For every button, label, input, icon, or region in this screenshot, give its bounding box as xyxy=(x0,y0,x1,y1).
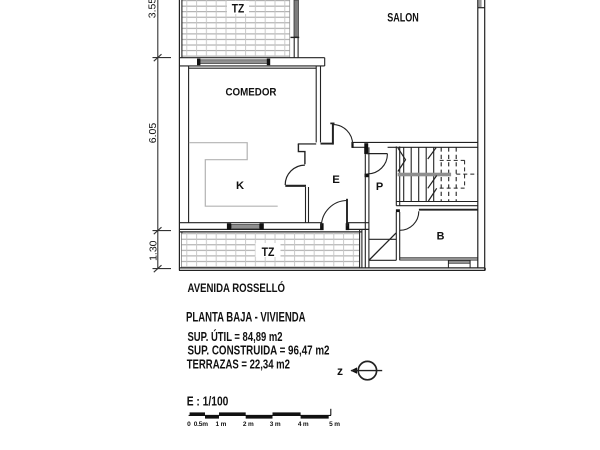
svg-text:SALON: SALON xyxy=(387,12,419,25)
svg-text:3.55: 3.55 xyxy=(146,0,158,18)
svg-text:6.05: 6.05 xyxy=(147,123,159,144)
svg-text:0.5m: 0.5m xyxy=(194,421,209,428)
svg-text:1.30: 1.30 xyxy=(148,240,160,261)
svg-text:E: E xyxy=(332,174,340,186)
svg-text:4 m: 4 m xyxy=(298,421,309,428)
svg-text:TZ: TZ xyxy=(232,2,245,16)
svg-text:1 m: 1 m xyxy=(216,421,227,428)
svg-text:TZ: TZ xyxy=(262,245,275,259)
svg-text:3 m: 3 m xyxy=(270,421,281,428)
svg-text:SUP. CONSTRUIDA = 96,47 m2: SUP. CONSTRUIDA = 96,47 m2 xyxy=(188,342,330,357)
svg-text:E : 1/100: E : 1/100 xyxy=(187,394,229,409)
svg-text:TERRAZAS = 22,34 m2: TERRAZAS = 22,34 m2 xyxy=(187,356,290,371)
svg-text:B: B xyxy=(437,230,445,242)
svg-text:P: P xyxy=(376,181,383,193)
svg-text:K: K xyxy=(236,180,244,192)
svg-text:0: 0 xyxy=(187,421,191,428)
svg-text:5 m: 5 m xyxy=(329,421,340,428)
svg-text:AVENIDA ROSSELLÓ: AVENIDA ROSSELLÓ xyxy=(188,280,286,295)
svg-text:COMEDOR: COMEDOR xyxy=(226,87,277,99)
svg-text:2 m: 2 m xyxy=(243,421,254,428)
svg-text:PLANTA BAJA - VIVIENDA: PLANTA BAJA - VIVIENDA xyxy=(186,310,306,325)
svg-text:z: z xyxy=(337,364,343,378)
